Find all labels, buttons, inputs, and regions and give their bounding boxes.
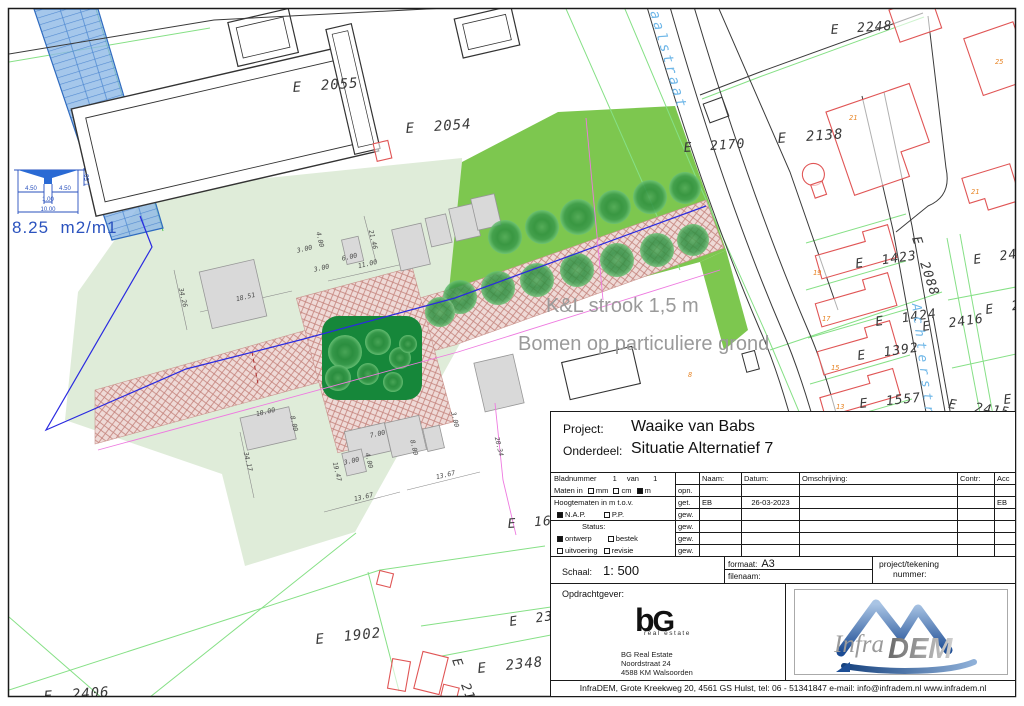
header-acc: Acc: [995, 473, 1015, 485]
house-number: 8: [688, 371, 692, 379]
cross-section-dim: 1.00: [42, 197, 54, 203]
rev-contr: [958, 497, 995, 509]
parcel-label: E 1902: [315, 625, 382, 648]
rev-contr: [958, 485, 995, 497]
checkbox-mm: [588, 488, 594, 494]
rev-contr: [958, 545, 995, 557]
parcel-label: E 2348: [477, 654, 544, 677]
checkbox-pp: [604, 512, 610, 518]
rev-naam: [700, 485, 742, 497]
checkbox-ontwerp: [557, 536, 563, 542]
house-number: 25: [995, 58, 1003, 66]
maten-option-label: cm: [621, 486, 631, 495]
rev-acc: EB: [995, 497, 1015, 509]
hoogtematen-label: Hoogtematen in m t.o.v.: [554, 498, 633, 507]
cross-section-dim: 1.50: [85, 174, 91, 186]
rev-label: gew.: [676, 521, 700, 533]
parcel-label: E 2417: [972, 245, 1024, 268]
pp-label: P.P.: [612, 510, 624, 519]
rev-datum: [742, 521, 800, 533]
checkbox-bestek: [608, 536, 614, 542]
map-annotation: K&L strook 1,5 m: [546, 295, 699, 317]
rev-naam: [700, 521, 742, 533]
rev-datum: [742, 509, 800, 521]
infradem-logo-cell: Infra DEM: [786, 584, 1015, 680]
maten-option-label: m: [645, 486, 651, 495]
schaal-label: Schaal:: [562, 567, 592, 577]
title-block-table: Bladnummer 1 van 1 Maten in mm cm m Hoog…: [551, 473, 1015, 557]
sheet-footer-bar: InfraDEM, Grote Kreekweg 20, 4561 GS Hul…: [551, 680, 1015, 694]
formaat-cell: formaat:A3 filenaam:: [725, 557, 873, 583]
rev-omschrijving: [800, 497, 958, 509]
parcel-label: E 2088: [908, 235, 941, 298]
house-number: 17: [822, 315, 831, 323]
rev-acc: [995, 533, 1015, 545]
checkbox-revisie: [604, 548, 610, 554]
onderdeel-label: Onderdeel:: [563, 444, 622, 458]
rev-acc: [995, 485, 1015, 497]
status-option-label: uitvoering: [565, 546, 598, 555]
client-address: BG Real Estate Noordstraat 24 4588 KM Wa…: [621, 650, 693, 677]
street-name-label: aalstraat: [646, 9, 690, 112]
parcel-label: E 2138: [777, 126, 844, 147]
opdrachtgever-section: Opdrachtgever: bG real estate BG Real Es…: [551, 584, 1015, 680]
rev-label: gew.: [676, 533, 700, 545]
schaal-value: 1: 500: [603, 563, 639, 578]
map-annotation: Bomen op particuliere grond: [518, 333, 769, 355]
hoogtematen-row: Hoogtematen in m t.o.v.: [551, 497, 675, 509]
project-label: Project:: [563, 422, 604, 436]
rev-omschrijving: [800, 533, 958, 545]
opdrachtgever-cell: Opdrachtgever: bG real estate BG Real Es…: [551, 584, 786, 680]
checkbox-uitvoering: [557, 548, 563, 554]
status-label: Status:: [582, 522, 605, 531]
rev-naam: [700, 533, 742, 545]
tree-cluster: [322, 316, 422, 400]
rev-acc: [995, 509, 1015, 521]
cross-section-dim: 4.50: [59, 186, 71, 192]
house-number: 21: [849, 114, 857, 122]
rev-omschrijving: [800, 485, 958, 497]
client-address-line: Noordstraat 24: [621, 659, 693, 668]
title-block-project: Project: Waaike van Babs Onderdeel: Situ…: [551, 412, 1015, 473]
formaat-label: formaat:: [728, 560, 757, 569]
status-option-label: bestek: [616, 534, 638, 543]
parcel-label: E 241: [984, 296, 1024, 318]
nummer-label: nummer:: [893, 569, 1015, 579]
status-options-row1: ontwerp bestek: [551, 533, 675, 545]
project-value: Waaike van Babs: [631, 418, 755, 436]
logo-infra-text: Infra: [833, 631, 884, 658]
rev-omschrijving: [800, 521, 958, 533]
rev-acc: [995, 521, 1015, 533]
van-label: van: [627, 474, 639, 483]
maten-option-label: mm: [596, 486, 609, 495]
header-contr: Contr:: [958, 473, 995, 485]
rev-acc: [995, 545, 1015, 557]
bladnummer-label: Bladnummer: [554, 474, 597, 483]
rev-datum: [742, 485, 800, 497]
house-number: 19: [813, 269, 821, 277]
infradem-logo-frame: Infra DEM: [794, 589, 1008, 675]
rev-contr: [958, 533, 995, 545]
rev-contr: [958, 521, 995, 533]
rev-datum: 26-03-2023: [742, 497, 800, 509]
filenaam-label: filenaam:: [728, 572, 760, 581]
dimension-label: 20.34: [493, 436, 505, 457]
nap-label: N.A.P.: [565, 510, 586, 519]
client-address-line: 4588 KM Walsoorden: [621, 668, 693, 677]
footer-address: InfraDEM, Grote Kreekweg 20, 4561 GS Hul…: [580, 683, 986, 693]
tekening-nummer-cell: project/tekening nummer:: [873, 557, 1015, 583]
house-number: 13: [836, 403, 844, 411]
infradem-logo: Infra DEM: [796, 590, 1006, 674]
parcel-label: E 2406: [43, 684, 110, 705]
cross-section-dim: 4.50: [25, 186, 37, 192]
checkbox-cm: [613, 488, 619, 494]
nap-pp-row: N.A.P. P.P.: [551, 509, 675, 521]
rev-label: opn.: [676, 485, 700, 497]
status-option-label: ontwerp: [565, 534, 592, 543]
dimension-label: 3.00: [449, 410, 461, 428]
parcel-label: E: [1003, 392, 1013, 408]
checkbox-nap: [557, 512, 563, 518]
rev-datum: [742, 545, 800, 557]
schaal-cell: Schaal: 1: 500: [551, 557, 725, 583]
header-blank: [676, 473, 700, 485]
rev-naam: [700, 509, 742, 521]
rev-naam: EB: [700, 497, 742, 509]
rev-label: gew.: [676, 545, 700, 557]
drawing-sheet: E 2055E 2054E 2170E 2138E 2248E 1423E 20…: [0, 0, 1024, 706]
opdrachtgever-label: Opdrachtgever:: [562, 589, 624, 599]
bladnummer-value: 1: [613, 474, 617, 483]
header-omschrijving: Omschrijving:: [800, 473, 958, 485]
rev-omschrijving: [800, 545, 958, 557]
maten-row: Maten in mm cm m: [551, 485, 675, 497]
bladen-totaal: 1: [653, 474, 657, 483]
status-row: Status:: [551, 521, 675, 533]
header-datum: Datum:: [742, 473, 800, 485]
header-naam: Naam:: [700, 473, 742, 485]
rev-omschrijving: [800, 509, 958, 521]
formaat-value: A3: [761, 558, 774, 570]
onderdeel-value: Situatie Alternatief 7: [631, 440, 773, 458]
parcel-label: E 2248: [830, 19, 893, 38]
logo-dem-text: DEM: [888, 633, 953, 665]
rev-label: get.: [676, 497, 700, 509]
dimension-label: 13.67: [435, 469, 456, 481]
table-left-block: Bladnummer 1 van 1 Maten in mm cm m Hoog…: [551, 473, 676, 557]
maten-label: Maten in: [554, 486, 583, 495]
logo-subtitle: real estate: [644, 630, 705, 637]
status-options-row2: uitvoering revisie: [551, 545, 675, 557]
parcel-label: E 2054: [405, 116, 472, 137]
water-area-label: 8.25 m2/m1: [12, 218, 118, 237]
title-block: Project: Waaike van Babs Onderdeel: Situ…: [550, 411, 1016, 697]
schaal-section: Schaal: 1: 500 formaat:A3 filenaam: proj…: [551, 557, 1015, 584]
checkbox-m: [637, 488, 643, 494]
house-number: 15: [831, 364, 839, 372]
project-tekening-label: project/tekening: [879, 559, 1015, 569]
rev-naam: [700, 545, 742, 557]
rev-datum: [742, 533, 800, 545]
parcel-label: E 2170: [683, 137, 746, 156]
cross-section-dim: 10.00: [40, 207, 56, 213]
client-address-line: BG Real Estate: [621, 650, 693, 659]
house-number: 21: [971, 188, 979, 196]
status-option-label: revisie: [612, 546, 634, 555]
bg-real-estate-logo: bG real estate: [635, 602, 705, 637]
rev-contr: [958, 509, 995, 521]
bladnummer-row: Bladnummer 1 van 1: [551, 473, 675, 485]
rev-label: gew.: [676, 509, 700, 521]
